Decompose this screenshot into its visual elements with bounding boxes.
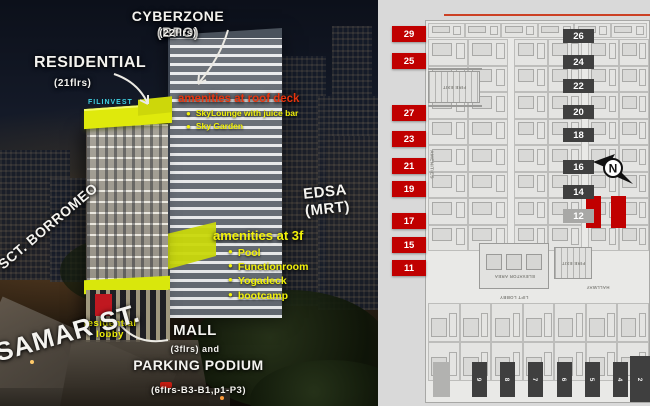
bullet-item: ●SkyLounge with juice bar <box>186 108 298 121</box>
bottom-bar-gray <box>433 362 450 397</box>
floor-tag: 15 <box>392 237 426 253</box>
mall-title: MALL <box>150 322 240 339</box>
street-light <box>30 360 34 364</box>
unit-cell <box>619 66 650 93</box>
unit-row-top <box>428 23 647 38</box>
unit-cell <box>428 198 468 225</box>
floor-tag: 16 <box>563 160 594 174</box>
bullet-dot: ● <box>228 289 233 302</box>
unit-cell <box>514 92 548 119</box>
bullet-dot: ● <box>228 246 233 259</box>
unit-cell <box>514 198 548 225</box>
bullet-item: ●Pool <box>228 246 308 260</box>
stair-upper: FIRE EXIT <box>428 71 480 103</box>
highlight-bar <box>611 196 626 228</box>
background-building <box>332 26 372 136</box>
amenities-label: AMENITIES <box>429 150 434 179</box>
bullet-dot: ● <box>228 274 233 287</box>
stair-lower: FIRE EXIT <box>554 247 592 279</box>
fire-exit-label: FIRE EXIT <box>442 85 466 90</box>
unit-cell <box>501 23 538 38</box>
bottom-floor-bar: 7 <box>528 362 543 397</box>
floor-tag: 18 <box>563 128 594 142</box>
amenities-3f-title: amenities at 3f <box>213 228 303 243</box>
bottom-floor-bar: 9 <box>472 362 487 397</box>
floor-tag: 11 <box>392 260 426 276</box>
floor-tag: 23 <box>392 131 426 147</box>
north-compass-icon: N <box>591 146 635 190</box>
unit-cell <box>588 225 619 252</box>
bottom-floor-bar: 8 <box>500 362 515 397</box>
unit-cell <box>611 23 648 38</box>
parking-title: PARKING PODIUM <box>126 357 271 373</box>
unit-cell <box>554 303 586 342</box>
bottom-floor-label: 6 <box>561 378 568 382</box>
bottom-floor-label: 2 <box>636 377 643 381</box>
hallway-wrap: HALLWAY <box>568 281 628 293</box>
elevator-area-wrap: ELEVATOR AREA <box>480 270 550 282</box>
residential-title: RESIDENTIAL <box>34 54 146 72</box>
fire-exit-label: FIRE EXIT <box>561 261 585 266</box>
floor-tag: 27 <box>392 105 426 121</box>
residential-floors: (21flrs) <box>54 78 91 89</box>
amenities-3f-list: ●Pool●Functionroom●Yogadeck●bootcamp <box>228 246 308 303</box>
unit-cell <box>468 198 508 225</box>
mall-floors: (3flrs) and <box>150 344 240 354</box>
floor-tag: 25 <box>392 53 426 69</box>
lift-lobby-label: LIFT LOBBY <box>500 295 529 300</box>
street-light <box>220 396 224 400</box>
unit-cell <box>523 303 555 342</box>
unit-cell <box>428 39 468 66</box>
bullet-item: ●bootcamp <box>228 289 308 303</box>
unit-cell <box>617 303 649 342</box>
floor-tag: 14 <box>563 185 594 199</box>
unit-cell <box>619 119 650 146</box>
bullet-text: Pool <box>238 246 261 260</box>
unit-cell <box>514 145 548 172</box>
unit-cell <box>468 145 508 172</box>
unit-cell <box>514 39 548 66</box>
floor-tag: 21 <box>392 158 426 174</box>
accent-line <box>444 14 650 16</box>
unit-cell <box>514 119 548 146</box>
unit-cell <box>468 39 508 66</box>
unit-cell <box>619 39 650 66</box>
unit-cell <box>428 23 465 38</box>
floor-tag: 26 <box>563 29 594 43</box>
unit-cell <box>428 225 468 252</box>
bottom-floor-label: 5 <box>589 378 596 382</box>
bottom-floor-bar: 5 <box>585 362 600 397</box>
floor-tag: 17 <box>392 213 426 229</box>
lift-lobby-wrap: LIFT LOBBY <box>479 291 549 303</box>
bullet-dot: ● <box>186 121 191 134</box>
lift-shaft <box>526 254 542 270</box>
bottom-floor-label: 4 <box>617 378 624 382</box>
unit-cell <box>619 92 650 119</box>
marketing-slide: CYBERZONE (BPO) (22flrs) RESIDENTIAL (21… <box>0 0 650 406</box>
bullet-item: ●Yogadeck <box>228 274 308 288</box>
bottom-floor-bar: 6 <box>557 362 572 397</box>
unit-cell <box>468 172 508 199</box>
bottom-floor-bar: 4 <box>613 362 628 397</box>
floor-tag: 19 <box>392 181 426 197</box>
bottom-floor-bar-wide: 2 <box>630 356 650 402</box>
elevator-area-label: ELEVATOR AREA <box>495 274 535 279</box>
bullet-text: SkyLounge with juice bar <box>196 108 299 119</box>
unit-cell <box>586 303 618 342</box>
bullet-dot: ● <box>186 108 191 121</box>
parking-floors: (6flrs-B3-B1,p1-P3) <box>126 385 271 396</box>
floor-tag: 22 <box>563 79 594 93</box>
lift-shaft <box>506 254 522 270</box>
filinvest-sign: FILINVEST <box>88 99 133 106</box>
floor-tag: 20 <box>563 105 594 119</box>
elevator-core: ELEVATOR AREA <box>479 243 549 289</box>
svg-text:N: N <box>609 162 618 176</box>
roof-amenities-list: ●SkyLounge with juice bar●Sky Garden <box>186 108 298 134</box>
lift-shaft <box>486 254 502 270</box>
bullet-dot: ● <box>228 260 233 273</box>
unit-cell <box>460 303 492 342</box>
unit-cell <box>514 172 548 199</box>
unit-cell <box>514 66 548 93</box>
bottom-floor-label: 8 <box>504 378 511 382</box>
unit-cell <box>428 303 460 342</box>
slab-line <box>428 105 482 107</box>
unit-cell <box>619 225 650 252</box>
bullet-item: ●Functionroom <box>228 260 308 274</box>
bullet-item: ●Sky Garden <box>186 121 298 134</box>
bottom-floor-label: 9 <box>476 378 483 382</box>
unit-cell <box>468 119 508 146</box>
roof-amenities-title: amenities at roof deck <box>178 93 299 105</box>
floor-tag: 12 <box>563 209 594 223</box>
bullet-text: bootcamp <box>238 289 288 303</box>
bullet-text: Functionroom <box>238 260 309 274</box>
bottom-floor-label: 7 <box>532 378 539 382</box>
floor-tag: 24 <box>563 55 594 69</box>
slab-line <box>428 68 482 70</box>
floor-tag: 29 <box>392 26 426 42</box>
unit-cell <box>465 23 502 38</box>
bullet-text: Sky Garden <box>196 121 243 132</box>
bullet-text: Yogadeck <box>238 274 287 288</box>
unit-cell <box>491 303 523 342</box>
hallway-label: HALLWAY <box>586 285 609 290</box>
floor-plan-panel: FIRE EXIT AMENITIES ELEVATOR AREA LIFT L… <box>378 0 650 406</box>
building-photo: CYBERZONE (BPO) (22flrs) RESIDENTIAL (21… <box>0 0 378 406</box>
cyberzone-floors: (22flrs) <box>118 28 238 39</box>
